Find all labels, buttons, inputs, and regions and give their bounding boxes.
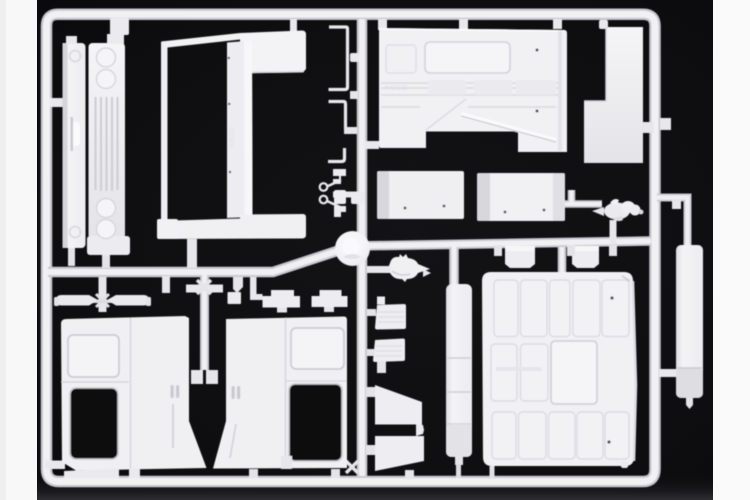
svg-text:IVECO: IVECO [385,85,407,92]
svg-text:IVECO: IVECO [230,127,236,148]
